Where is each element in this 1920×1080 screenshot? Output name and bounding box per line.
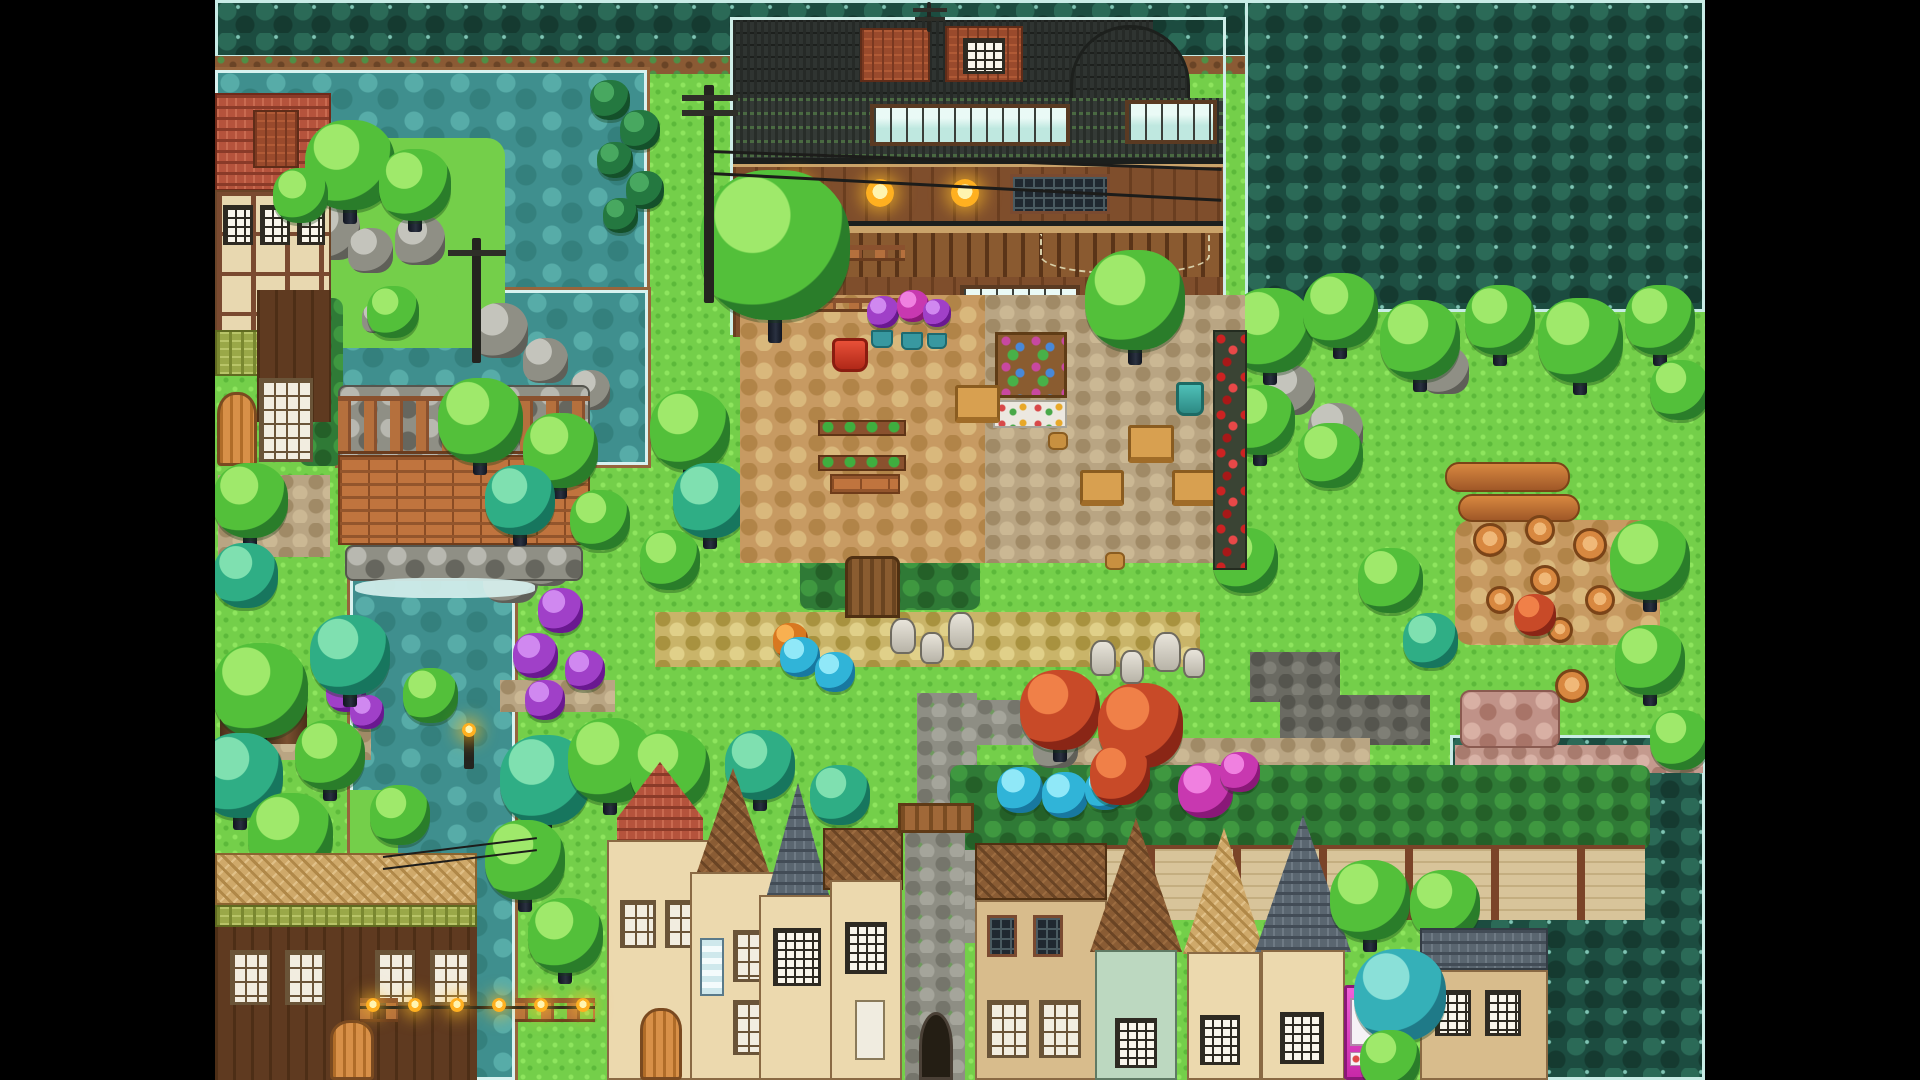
stone-row bbox=[1040, 738, 1370, 766]
tree-ml-3 bbox=[485, 465, 555, 535]
table-4 bbox=[1172, 470, 1216, 506]
tree-rr-7 bbox=[1650, 360, 1705, 420]
tree-rm-2 bbox=[1403, 613, 1458, 668]
tree-cb-7 bbox=[810, 765, 870, 825]
inn-antenna-bar-2 bbox=[915, 17, 945, 21]
stool-3 bbox=[1105, 552, 1125, 570]
stump-3 bbox=[1573, 528, 1607, 562]
magenta-bush-2 bbox=[1220, 752, 1260, 792]
inn-lantern-3 bbox=[951, 179, 979, 207]
stump-6 bbox=[1585, 585, 1615, 615]
inn-window-band-1 bbox=[870, 104, 1070, 146]
purple-bush-4 bbox=[525, 680, 565, 720]
teal-bin bbox=[1176, 382, 1204, 416]
utility-pole bbox=[704, 85, 714, 303]
houseB-L-roof bbox=[975, 843, 1107, 900]
red-sapling bbox=[1514, 594, 1556, 636]
houseR-window-2 bbox=[1485, 990, 1521, 1036]
tree-rr-5 bbox=[1538, 298, 1623, 383]
letterbox-right bbox=[1705, 0, 1920, 1080]
stump-2 bbox=[1525, 515, 1555, 545]
flower-pot-1 bbox=[871, 330, 893, 348]
left-inn-chimney bbox=[253, 110, 299, 168]
fence-lamp-2 bbox=[408, 998, 422, 1012]
lantern-rope bbox=[360, 1006, 595, 1009]
waterfall-foam bbox=[355, 578, 535, 598]
log-1 bbox=[1445, 462, 1570, 492]
log-2 bbox=[1458, 494, 1580, 522]
tree-lb-9 bbox=[403, 668, 458, 723]
houseB-M2-window bbox=[1200, 1015, 1240, 1065]
flower-pot-3 bbox=[927, 333, 947, 349]
left-inn-door[interactable] bbox=[217, 392, 257, 466]
tree-cb-3 bbox=[528, 898, 603, 973]
pine-1 bbox=[590, 80, 630, 120]
maple-1 bbox=[1020, 670, 1100, 750]
inn-dormer-1 bbox=[860, 28, 930, 82]
stump-4 bbox=[1530, 565, 1560, 595]
tree-bR-3 bbox=[1360, 1030, 1420, 1080]
fence-lamp-3 bbox=[450, 998, 464, 1012]
island-rock-3 bbox=[348, 228, 393, 273]
table-2 bbox=[1128, 425, 1174, 463]
rock-mid-2 bbox=[523, 338, 568, 383]
stump-9 bbox=[1555, 669, 1589, 703]
tree-lb-1 bbox=[215, 463, 288, 538]
utility-pole-bar-2 bbox=[682, 110, 738, 116]
houseB-S-window bbox=[1280, 1012, 1324, 1064]
tree-cb-2 bbox=[485, 820, 565, 900]
flower-pot-2 bbox=[901, 332, 923, 350]
left-inn-window-1 bbox=[223, 205, 253, 245]
island-tree-2 bbox=[379, 149, 451, 221]
letterbox-left bbox=[0, 0, 215, 1080]
pine-3 bbox=[597, 142, 633, 178]
houseA-window-1 bbox=[620, 900, 656, 948]
houseBL-green-band bbox=[215, 905, 477, 927]
houseBL-window-2 bbox=[285, 950, 325, 1005]
houseR-roof bbox=[1420, 928, 1548, 970]
street-lamp-post bbox=[464, 733, 474, 769]
table-3 bbox=[1080, 470, 1124, 506]
courtyard-gate[interactable] bbox=[845, 556, 900, 618]
tree-rm-4 bbox=[1615, 625, 1685, 695]
inn-front-tree bbox=[700, 170, 850, 320]
courtyard-tree bbox=[1085, 250, 1185, 350]
river-pole-bar bbox=[448, 250, 506, 256]
left-inn-porch-door[interactable] bbox=[259, 378, 313, 462]
tree-ml-1 bbox=[438, 378, 523, 463]
cyan-bush-2 bbox=[815, 652, 855, 692]
houseA-banner bbox=[855, 1000, 885, 1060]
houseBL-door[interactable] bbox=[330, 1020, 374, 1080]
red-bucket bbox=[832, 338, 868, 372]
pine-5 bbox=[603, 198, 638, 233]
cyan-bush-1 bbox=[780, 637, 820, 677]
tree-lb-8 bbox=[370, 785, 430, 845]
tree-lb-3 bbox=[215, 643, 308, 738]
fence-lamp-1 bbox=[366, 998, 380, 1012]
houseB-L-window-2 bbox=[1033, 915, 1063, 957]
stump-1 bbox=[1473, 523, 1507, 557]
jar-6 bbox=[1153, 632, 1181, 672]
jar-7 bbox=[1183, 648, 1205, 678]
houseA-window-6 bbox=[845, 922, 887, 974]
river-pole bbox=[472, 238, 481, 363]
cyan-bush-3 bbox=[997, 767, 1043, 813]
table-1 bbox=[955, 385, 1000, 423]
fence-lamp-6 bbox=[576, 998, 590, 1012]
houseBL-window-1 bbox=[230, 950, 270, 1005]
purple-bush-1 bbox=[538, 588, 583, 633]
fence-lamp-5 bbox=[534, 998, 548, 1012]
flower-pot-bloom-3 bbox=[923, 299, 951, 327]
tree-lb-2 bbox=[215, 543, 278, 608]
blue-tree bbox=[1354, 949, 1446, 1041]
houseA-poster bbox=[700, 938, 724, 996]
utility-pole-bar-1 bbox=[682, 95, 738, 101]
flower-pot-bloom-1 bbox=[867, 296, 899, 328]
inn-dormer-window bbox=[963, 38, 1005, 74]
jar-5 bbox=[1120, 650, 1144, 684]
jar-4 bbox=[1090, 640, 1116, 676]
tree-rr-2 bbox=[1303, 273, 1378, 348]
deep-forest-right-block bbox=[1245, 0, 1705, 312]
planter-stand bbox=[995, 332, 1067, 398]
inn-window-band-2 bbox=[1125, 100, 1217, 144]
inn-antenna-bar-1 bbox=[913, 8, 947, 12]
tree-lc-1 bbox=[650, 390, 730, 470]
game-screen bbox=[0, 0, 1920, 1080]
island-tree-3 bbox=[273, 168, 328, 223]
street-lamp bbox=[462, 723, 476, 737]
houseA-door[interactable] bbox=[640, 1008, 682, 1080]
bench bbox=[830, 474, 900, 494]
cyan-bush-4 bbox=[1042, 772, 1088, 818]
pink-rock-pile bbox=[1460, 690, 1560, 748]
tower-walkway bbox=[898, 803, 974, 833]
houseB-L-window-1 bbox=[987, 915, 1017, 957]
rose-trellis bbox=[1213, 330, 1247, 570]
tree-lb-6 bbox=[295, 720, 365, 790]
houseBL-window-3 bbox=[375, 950, 415, 1005]
tree-rm-5 bbox=[1650, 710, 1705, 770]
tree-bR-1 bbox=[1330, 860, 1410, 940]
food-tray-table bbox=[993, 400, 1067, 428]
houseB-L-shoji-2 bbox=[1039, 1000, 1081, 1058]
planter-fence-1 bbox=[818, 420, 906, 436]
tree-ml-4 bbox=[570, 490, 630, 550]
stool-1 bbox=[1048, 432, 1068, 450]
purple-bush-2 bbox=[513, 633, 558, 678]
bridge-rocks-south bbox=[345, 545, 583, 581]
fence-lamp-4 bbox=[492, 998, 506, 1012]
tree-lb-4 bbox=[310, 615, 390, 695]
jar-2 bbox=[920, 632, 944, 664]
tree-lc-2 bbox=[673, 463, 748, 538]
houseB-M1-window bbox=[1115, 1018, 1157, 1068]
jar-3 bbox=[948, 612, 974, 650]
tree-rr-6 bbox=[1625, 285, 1695, 355]
tower-arch[interactable] bbox=[919, 1012, 953, 1080]
planter-fence-2 bbox=[818, 455, 906, 471]
tree-rr-9 bbox=[1298, 423, 1363, 488]
maple-3 bbox=[1090, 745, 1150, 805]
houseB-L-shoji-1 bbox=[987, 1000, 1029, 1058]
islet-tree bbox=[367, 286, 419, 338]
purple-bush-3 bbox=[565, 650, 605, 690]
jar-1 bbox=[890, 618, 916, 654]
tree-rr-3 bbox=[1380, 300, 1460, 380]
tree-rm-3 bbox=[1610, 520, 1690, 600]
houseA-window-5 bbox=[773, 928, 821, 986]
village-map[interactable] bbox=[215, 0, 1705, 1080]
tree-lc-3 bbox=[640, 530, 700, 590]
stump-5 bbox=[1486, 586, 1514, 614]
tree-rm-1 bbox=[1358, 548, 1423, 613]
tree-rr-4 bbox=[1465, 285, 1535, 355]
houseBL-window-4 bbox=[430, 950, 470, 1005]
houseA-wall-3 bbox=[759, 895, 837, 1080]
